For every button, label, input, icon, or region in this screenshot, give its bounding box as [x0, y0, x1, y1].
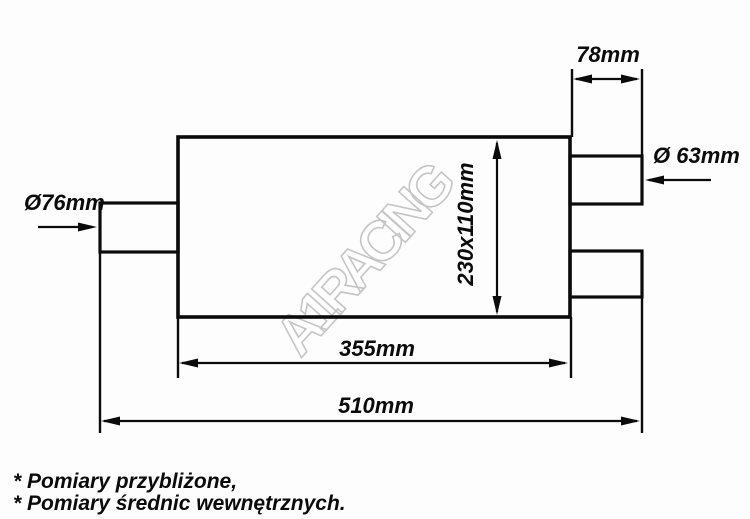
- note-line-1: * Pomiary przybliżone,: [13, 470, 237, 493]
- arrowhead-355-left: [179, 359, 198, 368]
- label-outlet-stub-length: 78mm: [576, 42, 640, 67]
- arrowhead-63: [645, 176, 664, 185]
- label-inlet-diameter: Ø76mm: [24, 190, 105, 215]
- label-overall-length: 510mm: [338, 393, 414, 418]
- label-body-length: 355mm: [339, 336, 415, 361]
- outlet-pipe-upper: [570, 156, 642, 204]
- arrowhead-78-left: [573, 75, 592, 84]
- watermark-text: A1RACING: [263, 151, 466, 367]
- arrowhead-230x110-top: [493, 140, 502, 159]
- arrowhead-510-left: [101, 417, 120, 426]
- note-line-2: * Pomiary średnic wewnętrznych.: [13, 492, 346, 515]
- inlet-pipe: [100, 203, 178, 252]
- arrowhead-76: [78, 223, 97, 232]
- arrowhead-78-right: [621, 75, 640, 84]
- arrowhead-355-right: [549, 359, 568, 368]
- arrowhead-230x110-bottom: [493, 296, 502, 315]
- arrowhead-510-right: [621, 417, 640, 426]
- muffler-dimension-diagram: A1RACING 78mm Ø 63mm Ø76mm 230x110mm: [0, 0, 750, 519]
- outlet-pipe-lower: [570, 251, 642, 297]
- label-body-cross-section: 230x110mm: [453, 162, 478, 286]
- label-outlet-diameter: Ø 63mm: [653, 143, 740, 168]
- diagram-canvas: A1RACING 78mm Ø 63mm Ø76mm 230x110mm: [0, 0, 750, 519]
